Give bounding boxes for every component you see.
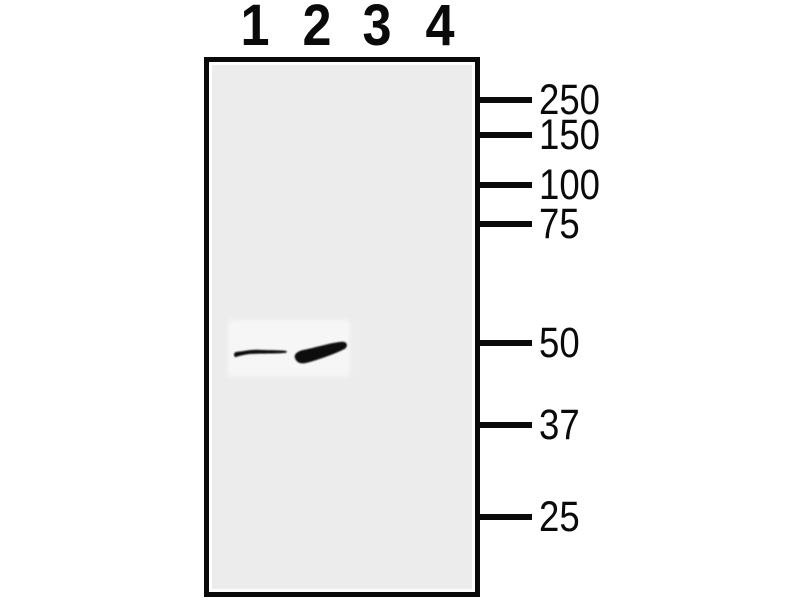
mw-tick-100 [480, 182, 532, 188]
mw-marker-150: 150 [480, 115, 611, 155]
blot-membrane-frame [204, 57, 480, 597]
mw-tick-50 [480, 340, 532, 346]
mw-marker-50: 50 [480, 323, 587, 363]
western-blot-figure: 1 2 3 4 250 150 100 75 [0, 0, 800, 600]
mw-marker-25: 25 [480, 497, 587, 537]
lane-label-1: 1 [240, 0, 269, 55]
lane-label-3: 3 [362, 0, 391, 55]
mw-marker-75: 75 [480, 204, 587, 244]
lane-label-2: 2 [302, 0, 331, 55]
gel-area [212, 65, 472, 589]
mw-marker-37: 37 [480, 405, 587, 445]
mw-label-50: 50 [539, 322, 580, 365]
mw-label-25: 25 [539, 496, 580, 539]
mw-tick-37 [480, 422, 532, 428]
mw-tick-150 [480, 132, 532, 138]
lane-label-4: 4 [425, 0, 454, 55]
mw-label-150: 150 [539, 114, 600, 157]
mw-label-37: 37 [539, 404, 580, 447]
mw-label-75: 75 [539, 203, 580, 246]
mw-tick-75 [480, 221, 532, 227]
mw-tick-250 [480, 97, 532, 103]
mw-tick-25 [480, 514, 532, 520]
